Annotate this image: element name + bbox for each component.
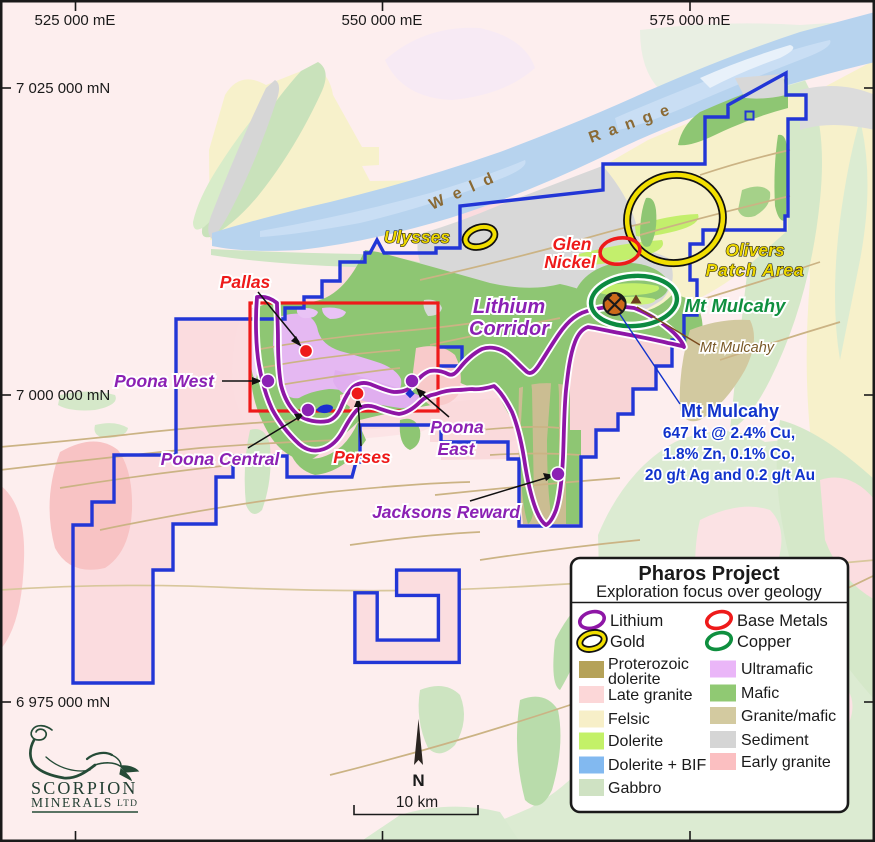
- svg-text:Mt Mulcahy: Mt Mulcahy: [685, 295, 787, 316]
- svg-text:Gabbro: Gabbro: [608, 780, 661, 797]
- svg-text:Jacksons Reward: Jacksons Reward: [372, 502, 520, 522]
- svg-text:Dolerite: Dolerite: [608, 733, 663, 750]
- svg-text:N: N: [412, 771, 424, 790]
- svg-text:Mt Mulcahy: Mt Mulcahy: [700, 340, 775, 356]
- svg-text:Lithium: Lithium: [473, 296, 545, 318]
- svg-text:Nickel: Nickel: [544, 252, 597, 272]
- svg-text:550 000 mE: 550 000 mE: [342, 12, 423, 29]
- svg-text:Felsic: Felsic: [608, 711, 650, 728]
- svg-text:Copper: Copper: [737, 633, 792, 651]
- svg-text:Olivers: Olivers: [725, 240, 785, 260]
- svg-text:dolerite: dolerite: [608, 671, 661, 688]
- svg-text:10 km: 10 km: [396, 794, 438, 811]
- svg-text:Early granite: Early granite: [741, 754, 831, 771]
- svg-text:Pallas: Pallas: [220, 272, 271, 292]
- svg-text:Granite/mafic: Granite/mafic: [741, 708, 836, 725]
- svg-text:1.8% Zn, 0.1% Co,: 1.8% Zn, 0.1% Co,: [663, 446, 795, 463]
- svg-text:Glen: Glen: [553, 234, 592, 254]
- svg-text:Pharos Project: Pharos Project: [638, 563, 780, 585]
- svg-text:Poona Central: Poona Central: [161, 449, 281, 469]
- svg-text:647 kt @ 2.4% Cu,: 647 kt @ 2.4% Cu,: [663, 425, 795, 442]
- svg-text:Mt Mulcahy: Mt Mulcahy: [681, 401, 779, 421]
- svg-text:6 975 000 mN: 6 975 000 mN: [16, 694, 110, 711]
- svg-text:LTD: LTD: [117, 799, 138, 809]
- svg-text:Exploration focus over geology: Exploration focus over geology: [596, 583, 822, 601]
- svg-text:Mafic: Mafic: [741, 685, 779, 702]
- svg-text:Gold: Gold: [610, 633, 645, 651]
- svg-text:20 g/t Ag and 0.2 g/t Au: 20 g/t Ag and 0.2 g/t Au: [645, 467, 815, 484]
- svg-text:Sediment: Sediment: [741, 732, 809, 749]
- svg-text:575 000 mE: 575 000 mE: [650, 12, 731, 29]
- svg-text:Poona: Poona: [430, 417, 484, 437]
- svg-text:Corridor: Corridor: [469, 318, 550, 340]
- svg-text:7 025 000 mN: 7 025 000 mN: [16, 80, 110, 97]
- svg-text:Dolerite + BIF: Dolerite + BIF: [608, 757, 706, 774]
- svg-text:7 000 000 mN: 7 000 000 mN: [16, 387, 110, 404]
- svg-text:Ultramafic: Ultramafic: [741, 661, 813, 678]
- svg-text:525 000 mE: 525 000 mE: [35, 12, 116, 29]
- svg-text:Patch Area: Patch Area: [706, 260, 805, 280]
- svg-text:MINERALS: MINERALS: [31, 795, 113, 810]
- svg-text:Perses: Perses: [333, 447, 391, 467]
- svg-text:Ulysses: Ulysses: [384, 227, 450, 247]
- svg-text:Late granite: Late granite: [608, 687, 693, 704]
- svg-text:Poona West: Poona West: [114, 371, 215, 391]
- svg-text:Lithium: Lithium: [610, 612, 663, 630]
- svg-text:East: East: [438, 439, 476, 459]
- svg-text:Base Metals: Base Metals: [737, 612, 828, 630]
